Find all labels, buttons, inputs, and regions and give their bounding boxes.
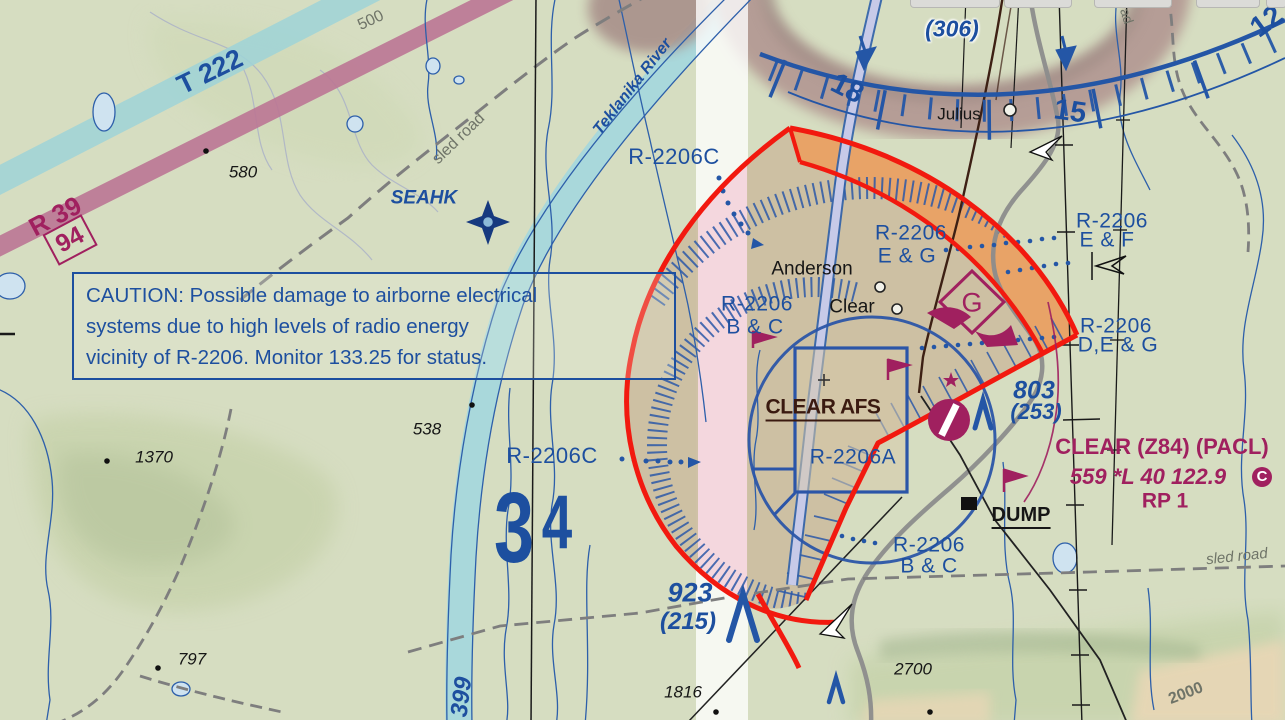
glider-symbol-letter: G — [961, 290, 982, 317]
top-tab[interactable] — [1266, 0, 1285, 8]
restricted-label-ef-2: E & F — [1079, 230, 1134, 251]
top-tab[interactable] — [910, 0, 1000, 8]
top-tab[interactable] — [1004, 0, 1072, 8]
restricted-label-r2206c-mid: R-2206C — [506, 445, 598, 467]
obstacle-label-923: 923 — [667, 580, 712, 607]
obstacle-icon-small — [829, 678, 843, 702]
obstacle-label-253: (253) — [1010, 401, 1061, 423]
restricted-label-r2206c-top: R-2206C — [628, 146, 720, 168]
seahk-waypoint-icon — [466, 200, 510, 245]
obstacle-label-215: (215) — [660, 610, 716, 634]
restricted-label-bc-left-1: R-2206 — [721, 294, 793, 315]
mef-digit-small: 4 — [542, 485, 572, 561]
facility-label-clear-afs: CLEAR AFS — [766, 397, 881, 422]
top-tab[interactable] — [1094, 0, 1172, 8]
aircraft-icon-2 — [1092, 252, 1126, 280]
mef-digit-large: 3 — [494, 478, 534, 578]
restricted-label-eg-1: R-2206 — [875, 223, 947, 244]
restricted-label-r2206a: R-2206A — [810, 447, 896, 468]
restricted-label-eg-2: E & G — [878, 246, 937, 267]
airport-name-label: CLEAR (Z84) (PACL) — [1055, 436, 1268, 458]
caution-line2: systems due to high levels of radio ener… — [86, 311, 662, 342]
waypoint-label-seahk: SEAHK — [391, 189, 458, 208]
route-label-399: 399 — [448, 676, 477, 719]
airport-ctaf-badge: C — [1252, 467, 1272, 487]
restricted-label-deg-2: D,E & G — [1078, 335, 1159, 356]
obstacle-label-306: (306) — [925, 18, 979, 41]
place-label-dump: DUMP — [992, 505, 1051, 529]
aircraft-icon-1 — [1030, 136, 1062, 160]
airport-rp-label: RP 1 — [1142, 491, 1188, 512]
place-label-anderson: Anderson — [771, 260, 852, 279]
caution-box: CAUTION: Possible damage to airborne ele… — [72, 272, 676, 380]
restricted-label-bc-bottom-2: B & C — [900, 556, 957, 577]
restricted-label-bc-bottom-1: R-2206 — [893, 535, 965, 556]
dump-site-icon — [961, 497, 977, 510]
airport-symbol — [928, 399, 970, 441]
place-label-clear: Clear — [829, 298, 874, 317]
restricted-label-bc-left-2: B & C — [726, 317, 783, 338]
place-label-julius: Julius — [937, 106, 980, 123]
spot-elevation-2700: 2700 — [894, 661, 932, 678]
top-tab[interactable] — [1196, 0, 1260, 8]
caution-line1: CAUTION: Possible damage to airborne ele… — [86, 280, 662, 311]
spot-elevation-580: 580 — [229, 164, 257, 181]
airport-info-label: 559 *L 40 122.9 — [1070, 466, 1226, 488]
spot-elevation-1370: 1370 — [135, 449, 173, 466]
spot-elevation-1816: 1816 — [664, 684, 702, 701]
compass-label-15: 15 — [1052, 95, 1088, 128]
caution-line3: vicinity of R-2206. Monitor 133.25 for s… — [86, 342, 662, 373]
spot-elevation-797: 797 — [178, 651, 206, 668]
spot-elevation-538: 538 — [413, 421, 441, 438]
circle-c-icon: C — [1252, 467, 1272, 487]
sectional-chart-map[interactable]: T 222 R 39 94 500 580 sled road ad SEAHK… — [0, 0, 1285, 720]
